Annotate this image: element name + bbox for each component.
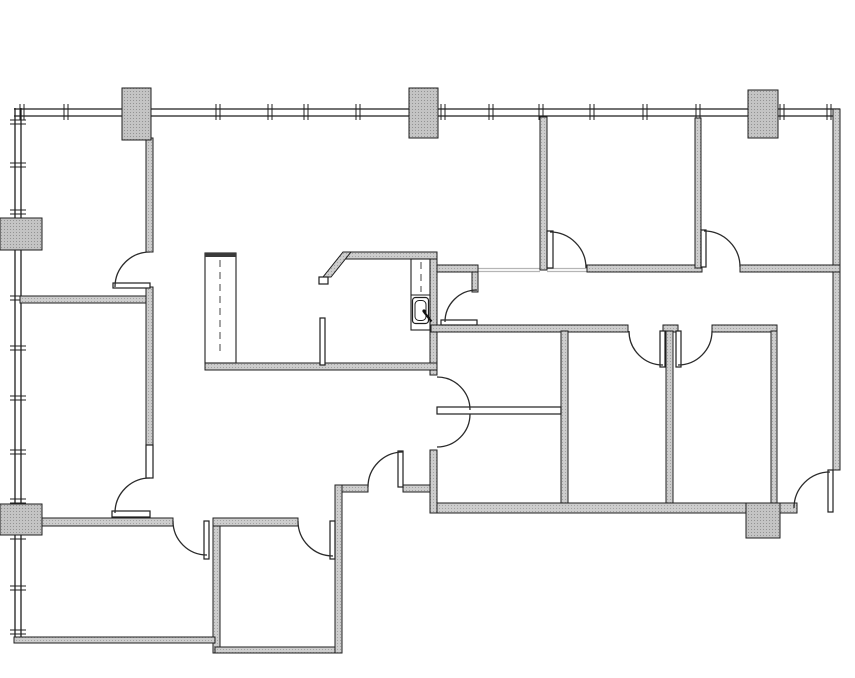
bottommid-room-top-wall: [213, 518, 298, 526]
topright-rooms-divider-wall: [695, 118, 701, 268]
door-leaf-closet: [441, 320, 477, 325]
bottomright-room1-left-wall: [561, 331, 568, 503]
bottom-exterior-wall: [431, 503, 797, 513]
kitchen-angled-wall-cap: [319, 277, 328, 284]
closet-side-wall: [472, 272, 478, 292]
column-left-lower: [0, 504, 42, 535]
door-leaf-exterior: [828, 470, 833, 512]
corridor-wall-west: [431, 325, 628, 332]
bottomleft-exterior-wall: [14, 637, 215, 643]
vestibule-wall-east: [403, 485, 433, 492]
vestibule-wall-west: [342, 485, 368, 492]
floor-plan-drawing: [0, 0, 855, 678]
center-wall-lower: [430, 450, 437, 513]
column-top-center: [409, 88, 438, 138]
reception-partition-wall: [540, 117, 547, 270]
topright-rooms-bottom-wall-east: [740, 265, 840, 272]
topright-rooms-bottom-wall-west: [587, 265, 702, 272]
closet-top-wall: [437, 265, 478, 272]
bottommid-room-right-wall: [335, 485, 342, 653]
leftmid-room-right-wall: [146, 287, 153, 445]
kitchen-top-wall: [345, 252, 437, 259]
topleft-room-right-wall: [146, 138, 153, 252]
door-leaf-vestibule: [398, 451, 403, 487]
bottomleft-room-top-wall: [40, 518, 173, 526]
bottomleft-room-right-wall: [213, 526, 220, 653]
door-leaf-topright-room1: [547, 231, 553, 268]
bottomright-rooms-divider-wall: [666, 331, 673, 503]
door-leaf-bottomright-room1: [660, 331, 665, 367]
sidelite-leftmid-room: [146, 445, 153, 478]
center-wall-mid: [430, 252, 437, 375]
door-leaf-topleft-room: [113, 283, 150, 288]
door-leaf-bottommid-room: [330, 521, 335, 559]
glass-partition-double-door: [437, 407, 561, 414]
right-exterior-wall: [833, 109, 840, 470]
column-top-left: [122, 88, 151, 140]
door-leaf-bottomright-room2: [676, 331, 681, 367]
column-bottom-right: [746, 503, 780, 538]
door-leaf-leftmid-room: [112, 511, 150, 517]
kitchen-cabinet-cap: [205, 253, 236, 257]
kitchen-stub-wall: [320, 318, 325, 365]
bottomright-rooms-right-wall: [771, 331, 777, 503]
door-leaf-topright-room2: [701, 230, 706, 267]
column-top-right: [748, 90, 778, 138]
corridor-wall-east: [712, 325, 777, 332]
floor-plan-page: [0, 0, 855, 678]
left-rooms-divider-wall: [20, 296, 147, 303]
bottommid-room-bottom-wall: [215, 647, 340, 653]
column-left-upper: [0, 218, 42, 250]
door-leaf-bottomleft-room: [204, 521, 209, 559]
